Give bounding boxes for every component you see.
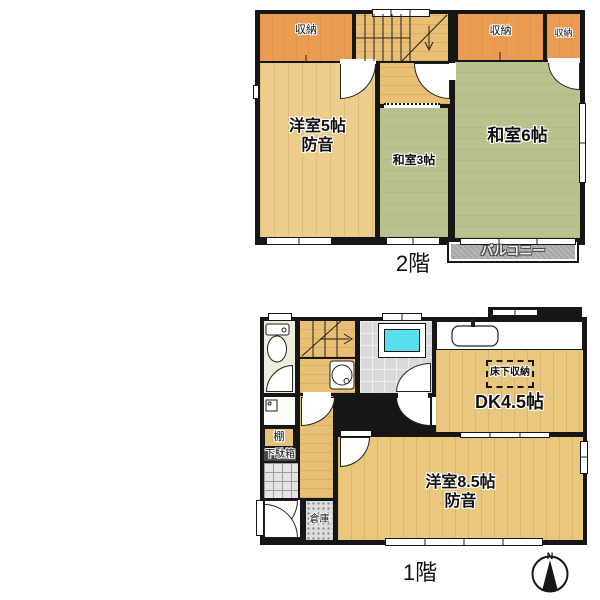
window-2f-stairs-top <box>372 9 430 17</box>
entrance-door-gap <box>256 500 264 536</box>
floor-plan-canvas: 収納 収納 収納 洋室5帖 防音 和室3帖 和室6帖 バルコニー 2階 <box>0 0 600 600</box>
label-shoe-cabinet: 下駄箱 <box>260 449 300 461</box>
window-2f-jp3-bottom <box>386 237 440 245</box>
label-closet-2f-right: 収納 <box>547 28 580 39</box>
label-western5: 洋室5帖 防音 <box>260 118 375 156</box>
window-west85-right <box>580 441 588 474</box>
kitchen-counter <box>436 321 583 350</box>
label-western5-size: 洋室5帖 <box>289 118 346 135</box>
window-kitchen-bump <box>492 309 538 316</box>
room-closet-2f-left <box>260 14 352 61</box>
sliding-opening-jp3 <box>384 103 440 108</box>
compass-n-label: N <box>543 551 557 562</box>
label-western85: 洋室8.5帖 防音 <box>338 474 583 512</box>
room-japanese6 <box>455 62 580 238</box>
label-floor2: 2階 <box>383 251 443 277</box>
washbasin-nook <box>264 397 295 425</box>
label-underfloor-storage: 床下収納 <box>462 367 558 379</box>
label-western85-size: 洋室8.5帖 <box>425 474 495 491</box>
label-western5-soundproof: 防音 <box>301 137 333 154</box>
window-2f-west5-bottom <box>266 237 332 245</box>
compass-icon <box>533 557 568 592</box>
window-bath-top <box>382 313 422 321</box>
room-japanese3 <box>380 108 448 237</box>
label-closet-2f-mid: 収納 <box>458 25 543 38</box>
label-dk: DK4.5帖 <box>436 392 583 413</box>
label-western85-soundproof: 防音 <box>444 493 476 510</box>
window-2f-jp6-right <box>579 103 586 183</box>
label-floor1: 1階 <box>390 560 450 586</box>
bathtub <box>384 329 420 352</box>
door-opening-washroom <box>398 392 428 398</box>
door-opening-closet-jp6 <box>548 58 580 63</box>
stairs-area-1f <box>300 321 355 357</box>
label-balcony: バルコニー <box>447 243 579 258</box>
window-west85-bottom <box>385 538 543 546</box>
label-shelf: 棚 <box>264 431 294 444</box>
sliding-door-dk-west85 <box>460 432 550 438</box>
door-opening-west5 <box>340 59 376 64</box>
window-2f-west-left <box>253 85 259 99</box>
door-opening-jp6 <box>449 63 456 80</box>
stairs-area-2f <box>356 14 448 61</box>
label-closet-2f-left: 収納 <box>260 24 352 37</box>
door-opening-hallway <box>303 392 331 398</box>
window-toilet-top <box>268 313 292 321</box>
entrance-tiles <box>264 463 298 498</box>
washroom <box>300 359 355 393</box>
door-leaf-west85 <box>340 430 372 437</box>
label-japanese6: 和室6帖 <box>455 126 580 146</box>
label-japanese3: 和室3帖 <box>380 153 448 167</box>
label-storage: 倉庫 <box>306 514 333 526</box>
